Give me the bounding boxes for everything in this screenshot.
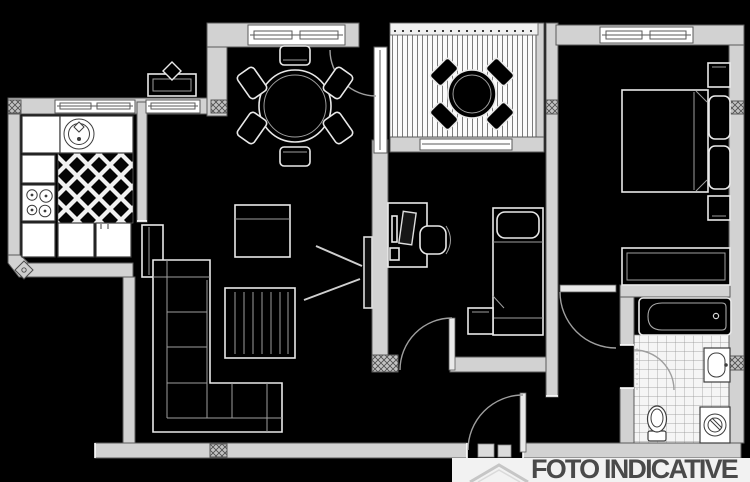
wall-segment: [620, 285, 730, 297]
window: [146, 100, 200, 113]
terrace-glass-partition: [374, 47, 387, 153]
wall-pilaster-hatch: [210, 444, 227, 457]
wall-pilaster-hatch: [8, 100, 21, 113]
wall-segment: [546, 23, 558, 397]
toilet: [648, 406, 667, 441]
small-nightstand: [468, 308, 493, 334]
coffee-table: [235, 205, 290, 257]
dining-table: [259, 70, 331, 142]
single-bed: [493, 208, 543, 335]
wall-segment: [27, 263, 133, 277]
kitchen-counter: [22, 223, 55, 257]
wall-pilaster-hatch: [372, 355, 398, 372]
bathtub: [639, 298, 731, 335]
wall-pilaster-hatch: [546, 100, 558, 114]
nightstand: [708, 196, 730, 220]
wall-segment: [123, 277, 135, 443]
logo-chimney: [498, 445, 511, 457]
fridge: [22, 155, 55, 183]
double-bed: [622, 90, 708, 192]
kitchen-counter: [22, 116, 60, 153]
floor-plan-image: FOTO INDICATIVE: [0, 0, 750, 482]
wall-segment: [8, 114, 20, 256]
wall-segment: [137, 102, 147, 222]
wall-segment: [620, 388, 634, 443]
logo-chimney: [478, 444, 494, 457]
apartment-floor-plan: FOTO INDICATIVE: [0, 0, 750, 482]
wall-segment: [95, 443, 467, 458]
wall-pilaster-hatch: [211, 100, 227, 113]
window: [248, 25, 345, 45]
washbasin: [704, 348, 730, 382]
kitchen-counter: [58, 223, 94, 257]
terrace-table: [448, 70, 496, 118]
window: [600, 27, 693, 43]
stove-4-burners: [22, 185, 55, 221]
wall-segment: [620, 297, 634, 345]
terrace-railing: [390, 23, 538, 35]
wall-pilaster-hatch: [730, 356, 744, 370]
watermark-text: FOTO INDICATIVE: [531, 454, 738, 482]
pillow: [709, 96, 730, 139]
wall-pilaster-hatch: [730, 101, 744, 114]
window: [420, 139, 512, 150]
window: [55, 100, 135, 113]
wardrobe: [622, 248, 730, 285]
office-chair: [420, 226, 451, 254]
wall-segment: [536, 23, 544, 137]
nightstand: [708, 63, 730, 87]
wall-segment: [372, 140, 388, 355]
rug: [225, 288, 295, 358]
pillow: [709, 146, 730, 189]
kitchen-tile-floor: [58, 153, 133, 223]
bedroom: [622, 63, 730, 285]
washing-machine: [700, 407, 730, 443]
wall-segment: [450, 357, 546, 372]
